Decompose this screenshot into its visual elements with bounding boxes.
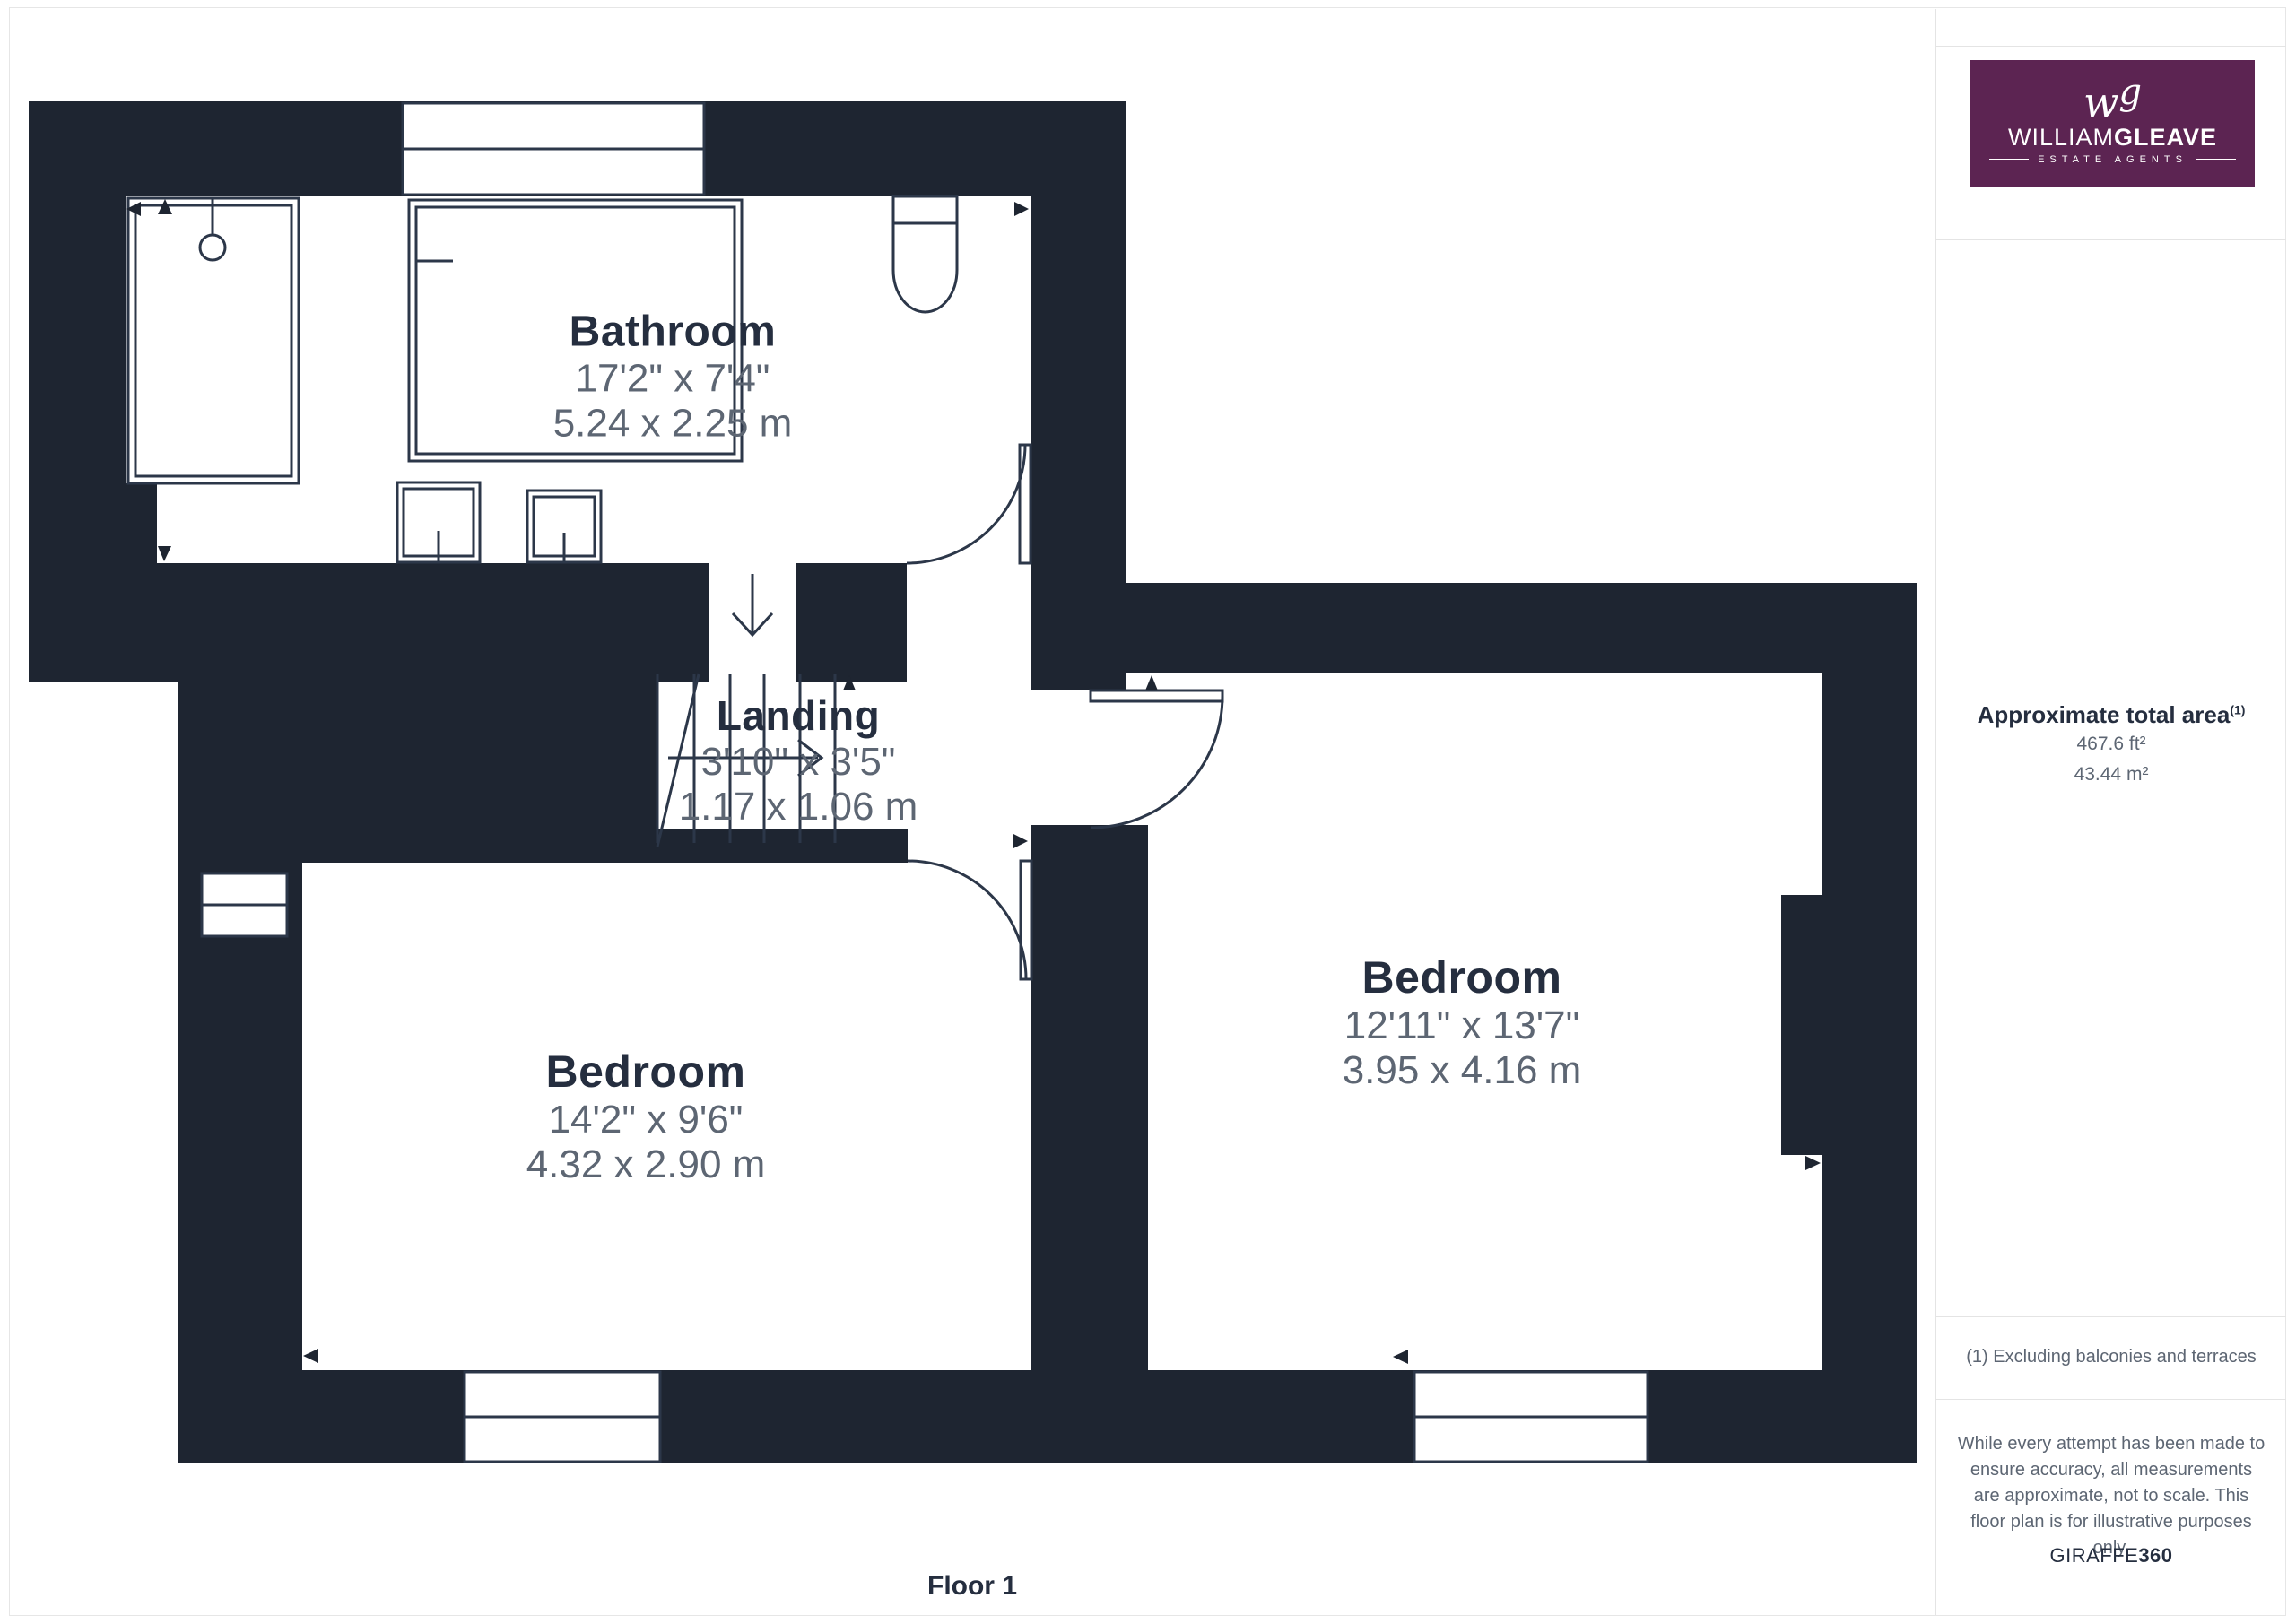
door-leaf-bedroom-right <box>1091 690 1222 701</box>
door-arc-bathroom <box>907 445 1025 563</box>
room-dims-metric: 3.95 x 4.16 m <box>1343 1048 1582 1093</box>
walls <box>29 101 1917 1463</box>
floorplan-page: Bathroom 17'2" x 7'4" 5.24 x 2.25 m Land… <box>0 0 2296 1624</box>
agency-monogram-icon: wg <box>2083 82 2142 123</box>
room-dims-metric: 4.32 x 2.90 m <box>526 1142 766 1187</box>
wall-bathroom-left-step <box>126 483 157 563</box>
wall-between-bedrooms <box>1031 825 1148 1463</box>
shower-inner <box>135 205 291 476</box>
marker-left-icon <box>1393 1350 1408 1364</box>
footnote-marker: (1) <box>2230 702 2245 716</box>
wall-bathroom-bottom-b <box>796 563 907 682</box>
room-dims-imperial: 14'2" x 9'6" <box>526 1098 766 1142</box>
wall-bedroom-right-side <box>1822 583 1917 1463</box>
wall-bedroom-right-top <box>1126 583 1917 673</box>
total-area-block: Approximate total area(1) 467.6 ft² 43.4… <box>1936 701 2286 790</box>
sidebar-divider <box>1936 1399 2286 1400</box>
tagline-rule <box>2196 159 2236 160</box>
sidebar-divider <box>1936 239 2286 240</box>
agency-logo: wg WILLIAMGLEAVE ESTATE AGENTS <box>1970 60 2255 187</box>
info-sidebar: wg WILLIAMGLEAVE ESTATE AGENTS Approxima… <box>1935 9 2286 1615</box>
room-dims-metric: 1.17 x 1.06 m <box>679 785 918 829</box>
marker-up-icon <box>1145 675 1158 690</box>
toilet-bowl <box>893 223 957 312</box>
marker-right-icon <box>1014 202 1029 216</box>
wall-bathroom-right <box>1031 196 1126 690</box>
marker-right-icon <box>1805 1156 1821 1170</box>
floor-label: Floor 1 <box>927 1571 1017 1602</box>
total-area-metric: 43.44 m² <box>1936 760 2286 790</box>
wall-mid-left-mass <box>178 563 657 863</box>
shower-outer <box>128 198 299 483</box>
room-dims-imperial: 17'2" x 7'4" <box>553 357 793 402</box>
shower-head-icon <box>200 235 225 260</box>
marker-down-icon <box>158 546 171 561</box>
fixtures <box>128 196 957 562</box>
room-title: Bathroom <box>553 308 793 357</box>
door-arc-bedroom-right <box>1091 696 1222 828</box>
room-title: Bedroom <box>526 1046 766 1098</box>
marker-right-icon <box>1013 834 1028 848</box>
room-label-bedroom-right: Bedroom 12'11" x 13'7" 3.95 x 4.16 m <box>1343 951 1582 1093</box>
giraffe360-credit: GIRAFFE360 <box>1936 1544 2286 1568</box>
tagline-rule <box>1989 159 2029 160</box>
toilet-cistern <box>893 196 957 223</box>
wall-bottom <box>178 1370 1917 1463</box>
room-dims-imperial: 3'10" x 3'5" <box>679 740 918 785</box>
chimney-breast-right <box>1781 895 1822 1155</box>
room-title: Landing <box>679 691 918 740</box>
agency-tagline: ESTATE AGENTS <box>1989 154 2236 165</box>
room-title: Bedroom <box>1343 951 1582 1003</box>
total-area-imperial: 467.6 ft² <box>1936 729 2286 760</box>
sidebar-divider <box>1936 1316 2286 1317</box>
room-label-bedroom-left: Bedroom 14'2" x 9'6" 4.32 x 2.90 m <box>526 1046 766 1187</box>
marker-left-icon <box>303 1349 318 1363</box>
room-dims-imperial: 12'11" x 13'7" <box>1343 1003 1582 1048</box>
room-label-landing: Landing 3'10" x 3'5" 1.17 x 1.06 m <box>679 691 918 829</box>
door-arc-bedroom-left <box>908 861 1026 979</box>
total-area-title: Approximate total area(1) <box>1936 701 2286 729</box>
agency-name: WILLIAMGLEAVE <box>2008 125 2217 150</box>
wall-bathroom-left <box>29 196 126 682</box>
sidebar-divider <box>1936 46 2286 47</box>
area-footnote: (1) Excluding balconies and terraces <box>1936 1347 2286 1368</box>
disclaimer-text: While every attempt has been made to ens… <box>1957 1431 2266 1561</box>
room-label-bathroom: Bathroom 17'2" x 7'4" 5.24 x 2.25 m <box>553 308 793 447</box>
room-dims-metric: 5.24 x 2.25 m <box>553 402 793 447</box>
